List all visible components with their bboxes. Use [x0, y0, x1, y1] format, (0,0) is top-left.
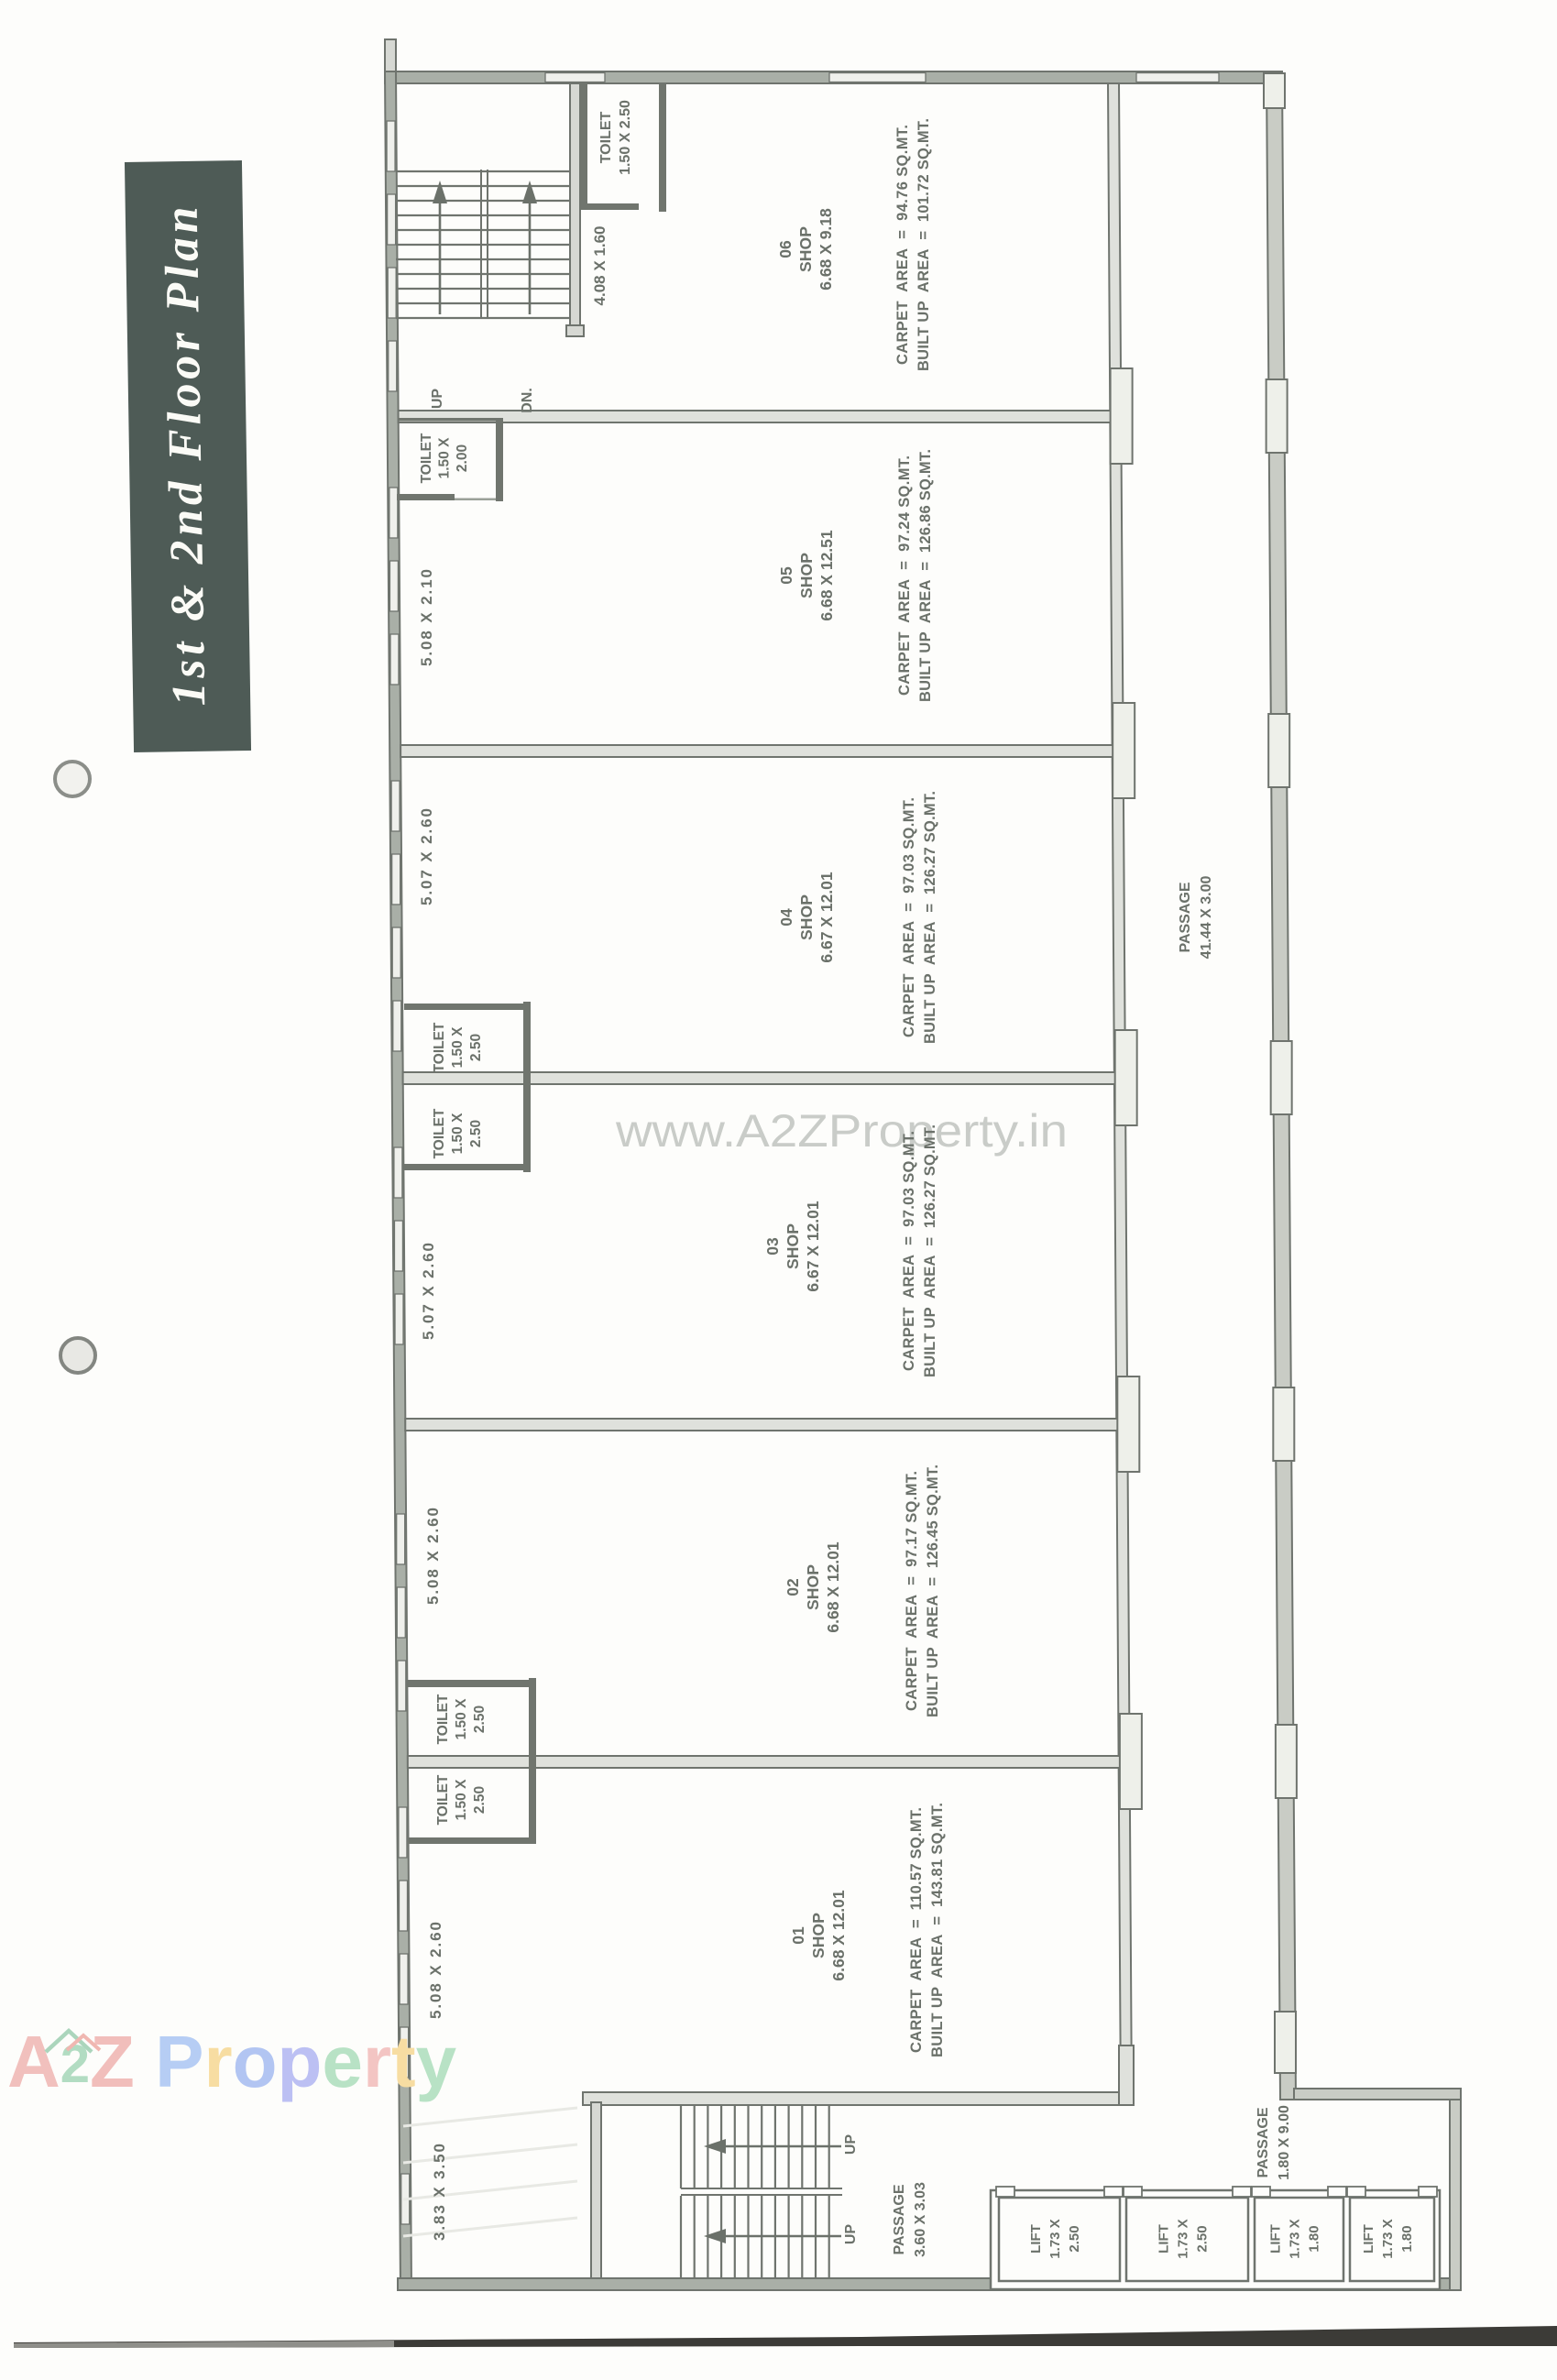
svg-text:6.67 X 12.01: 6.67 X 12.01 [804, 1201, 822, 1292]
svg-text:CARPET AREA = 97.03 SQ.MT.: CARPET AREA = 97.03 SQ.MT. [901, 1131, 917, 1371]
svg-text:5.08 X 2.10: 5.08 X 2.10 [418, 569, 435, 666]
svg-text:2.50: 2.50 [1195, 2225, 1211, 2252]
svg-text:BUILT UP AREA = 143.81 SQ.M: BUILT UP AREA = 143.81 SQ.MT. [929, 1803, 946, 2057]
svg-text:6.68 X 12.51: 6.68 X 12.51 [817, 530, 836, 621]
svg-text:SHOP: SHOP [804, 1564, 822, 1610]
svg-text:1.50 X: 1.50 X [454, 1698, 469, 1739]
svg-text:PASSAGE: PASSAGE [1178, 882, 1193, 952]
svg-text:06: 06 [776, 240, 795, 258]
svg-text:LIFT: LIFT [1268, 2224, 1284, 2254]
svg-text:CARPET AREA = 110.57 SQ.MT.: CARPET AREA = 110.57 SQ.MT. [908, 1807, 925, 2053]
svg-text:TOILET: TOILET [435, 1774, 451, 1825]
svg-text:2.50: 2.50 [472, 1786, 488, 1814]
svg-text:1.73 X: 1.73 X [1288, 2219, 1303, 2258]
svg-text:BUILT UP AREA = 126.86 SQ.M: BUILT UP AREA = 126.86 SQ.MT. [917, 449, 934, 702]
svg-text:BUILT UP AREA = 126.27 SQ.M: BUILT UP AREA = 126.27 SQ.MT. [922, 791, 938, 1044]
svg-text:SHOP: SHOP [796, 226, 815, 272]
svg-text:5.08 X 2.60: 5.08 X 2.60 [424, 1508, 442, 1605]
svg-text:1.73 X: 1.73 X [1176, 2219, 1191, 2258]
svg-text:5.07 X 2.60: 5.07 X 2.60 [418, 808, 435, 905]
svg-text:1.50 X: 1.50 X [450, 1026, 466, 1068]
svg-text:UP: UP [843, 2134, 859, 2155]
svg-text:SHOP: SHOP [784, 1223, 802, 1269]
svg-text:UP: UP [430, 389, 445, 410]
svg-text:TOILET: TOILET [598, 111, 614, 163]
svg-text:04: 04 [777, 908, 795, 927]
svg-text:PASSAGE: PASSAGE [1255, 2107, 1271, 2177]
svg-text:PASSAGE: PASSAGE [892, 2184, 907, 2254]
svg-text:BUILT UP AREA = 126.27 SQ.M: BUILT UP AREA = 126.27 SQ.MT. [922, 1124, 938, 1377]
svg-text:SHOP: SHOP [797, 894, 816, 940]
svg-text:6.68 X 12.01: 6.68 X 12.01 [829, 1890, 848, 1981]
svg-text:5.08 X 2.60: 5.08 X 2.60 [427, 1922, 444, 2019]
svg-text:CARPET AREA = 94.76 SQ.MT.: CARPET AREA = 94.76 SQ.MT. [894, 125, 911, 365]
svg-text:www.A2ZProperty.in: www.A2ZProperty.in [615, 1105, 1068, 1157]
svg-text:1.73 X: 1.73 X [1047, 2219, 1063, 2258]
svg-text:05: 05 [777, 566, 795, 585]
svg-text:6.68 X 9.18: 6.68 X 9.18 [817, 208, 835, 291]
svg-text:4.08 X 1.60: 4.08 X 1.60 [591, 226, 609, 306]
svg-text:02: 02 [784, 1578, 802, 1596]
svg-text:TOILET: TOILET [419, 433, 434, 483]
svg-text:CARPET AREA = 97.24 SQ.MT.: CARPET AREA = 97.24 SQ.MT. [896, 455, 913, 696]
svg-text:3.60 X 3.03: 3.60 X 3.03 [913, 2182, 928, 2257]
svg-text:BUILT UP AREA = 126.45 SQ.M: BUILT UP AREA = 126.45 SQ.MT. [925, 1464, 941, 1717]
svg-text:01: 01 [789, 1926, 807, 1945]
svg-text:1.80: 1.80 [1307, 2225, 1322, 2252]
svg-text:1.80 X 9.00: 1.80 X 9.00 [1277, 2105, 1292, 2180]
svg-text:1.80: 1.80 [1399, 2225, 1415, 2252]
svg-text:1.50 X: 1.50 X [454, 1779, 469, 1820]
svg-text:6.68 X 12.01: 6.68 X 12.01 [824, 1541, 842, 1633]
svg-text:SHOP: SHOP [797, 553, 816, 598]
svg-text:TOILET: TOILET [432, 1108, 447, 1158]
svg-text:1.50 X: 1.50 X [450, 1113, 466, 1154]
svg-text:2.50: 2.50 [472, 1705, 488, 1733]
svg-text:UP: UP [843, 2224, 859, 2245]
svg-text:TOILET: TOILET [432, 1022, 447, 1072]
svg-text:CARPET AREA = 97.03 SQ.MT.: CARPET AREA = 97.03 SQ.MT. [901, 797, 917, 1037]
svg-text:1.50 X: 1.50 X [437, 437, 453, 478]
svg-text:TOILET: TOILET [435, 1694, 451, 1744]
svg-text:LIFT: LIFT [1361, 2224, 1376, 2254]
svg-text:2.50: 2.50 [468, 1120, 484, 1147]
svg-text:2.50: 2.50 [1067, 2225, 1082, 2252]
svg-text:5.07 X 2.60: 5.07 X 2.60 [420, 1243, 437, 1340]
svg-text:CARPET AREA = 97.17 SQ.MT.: CARPET AREA = 97.17 SQ.MT. [904, 1471, 920, 1711]
svg-text:1.73 X: 1.73 X [1380, 2219, 1396, 2258]
svg-text:1.50 X 2.50: 1.50 X 2.50 [618, 100, 633, 175]
svg-text:BUILT UP AREA = 101.72 SQ.M: BUILT UP AREA = 101.72 SQ.MT. [916, 118, 932, 371]
svg-text:41.44 X 3.00: 41.44 X 3.00 [1199, 876, 1214, 960]
svg-text:3.83 X 3.50: 3.83 X 3.50 [431, 2144, 448, 2241]
svg-text:LIFT: LIFT [1028, 2224, 1044, 2254]
svg-text:SHOP: SHOP [809, 1913, 828, 1958]
svg-text:6.67 X 12.01: 6.67 X 12.01 [817, 872, 836, 963]
svg-text:LIFT: LIFT [1157, 2224, 1172, 2254]
svg-text:2.00: 2.00 [455, 444, 470, 472]
svg-text:03: 03 [763, 1237, 782, 1256]
svg-text:2.50: 2.50 [468, 1034, 484, 1061]
svg-text:DN.: DN. [520, 388, 535, 413]
